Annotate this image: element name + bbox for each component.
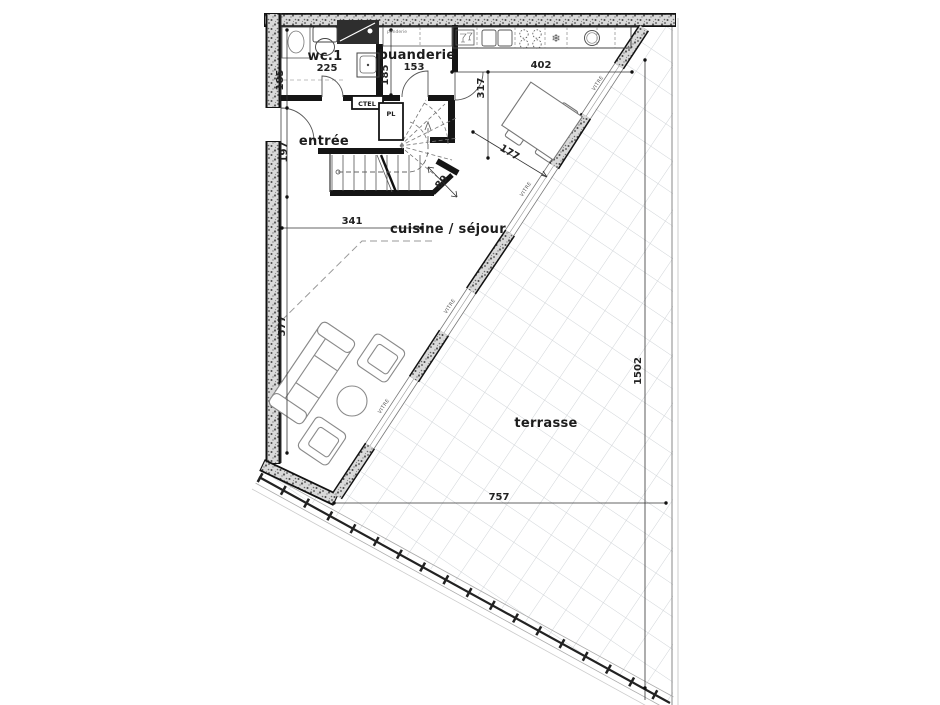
counter-note: penderie [387, 29, 407, 35]
kitchen-counter [453, 27, 631, 48]
dishwasher-icon [456, 30, 474, 45]
armchair [355, 332, 406, 384]
room-label-entree: entrée [299, 134, 349, 149]
glazing-label-4: VITRE [377, 398, 391, 415]
toilet-icon [313, 27, 337, 42]
dim-entree-height: 197 [279, 142, 290, 163]
room-label-terrasse: terrasse [514, 416, 577, 431]
dim-terrasse-width: 757 [489, 492, 510, 503]
dim-buanderie-height: 185 [380, 65, 391, 86]
shower-block [337, 20, 379, 44]
stair-cut-line [381, 155, 396, 192]
area-buanderie: 153 [404, 62, 425, 73]
dim-sejour-height: 577 [277, 316, 288, 337]
sink-icon-2 [498, 30, 512, 46]
coffee-table [337, 386, 367, 416]
dim-kitchen-depth: 317 [476, 78, 487, 99]
armchair-2 [296, 415, 347, 467]
closet-label-ctel: CTEL [358, 100, 376, 108]
wc-door [322, 76, 343, 97]
room-label-sejour: cuisine / séjour [390, 222, 506, 237]
floor-plan: ❄ [0, 0, 940, 705]
floor-plan-canvas: ❄ [0, 0, 940, 705]
closet-label-pl: PL [387, 110, 396, 118]
stair-angled-wall [437, 161, 458, 173]
area-wc: 225 [317, 63, 338, 74]
dim-wc-height: 185 [275, 70, 286, 91]
overhead-dashed-outline [271, 241, 432, 331]
dim-table-clearance: 177 [498, 143, 522, 163]
dim-terrasse-height: 1502 [633, 357, 644, 385]
fridge-snowflake-icon: ❄ [551, 32, 560, 45]
room-label-buanderie: buanderie [378, 48, 455, 63]
dim-sejour-width: 341 [342, 216, 363, 227]
room-label-wc: wc.1 [308, 49, 343, 64]
cooktop-icon [520, 30, 541, 48]
sink-icon [482, 30, 496, 46]
glazing-label-2: VITRE [519, 181, 533, 198]
laundry-door [402, 71, 428, 97]
closet-pl [379, 103, 403, 140]
dim-kitchen-width: 402 [531, 60, 552, 71]
